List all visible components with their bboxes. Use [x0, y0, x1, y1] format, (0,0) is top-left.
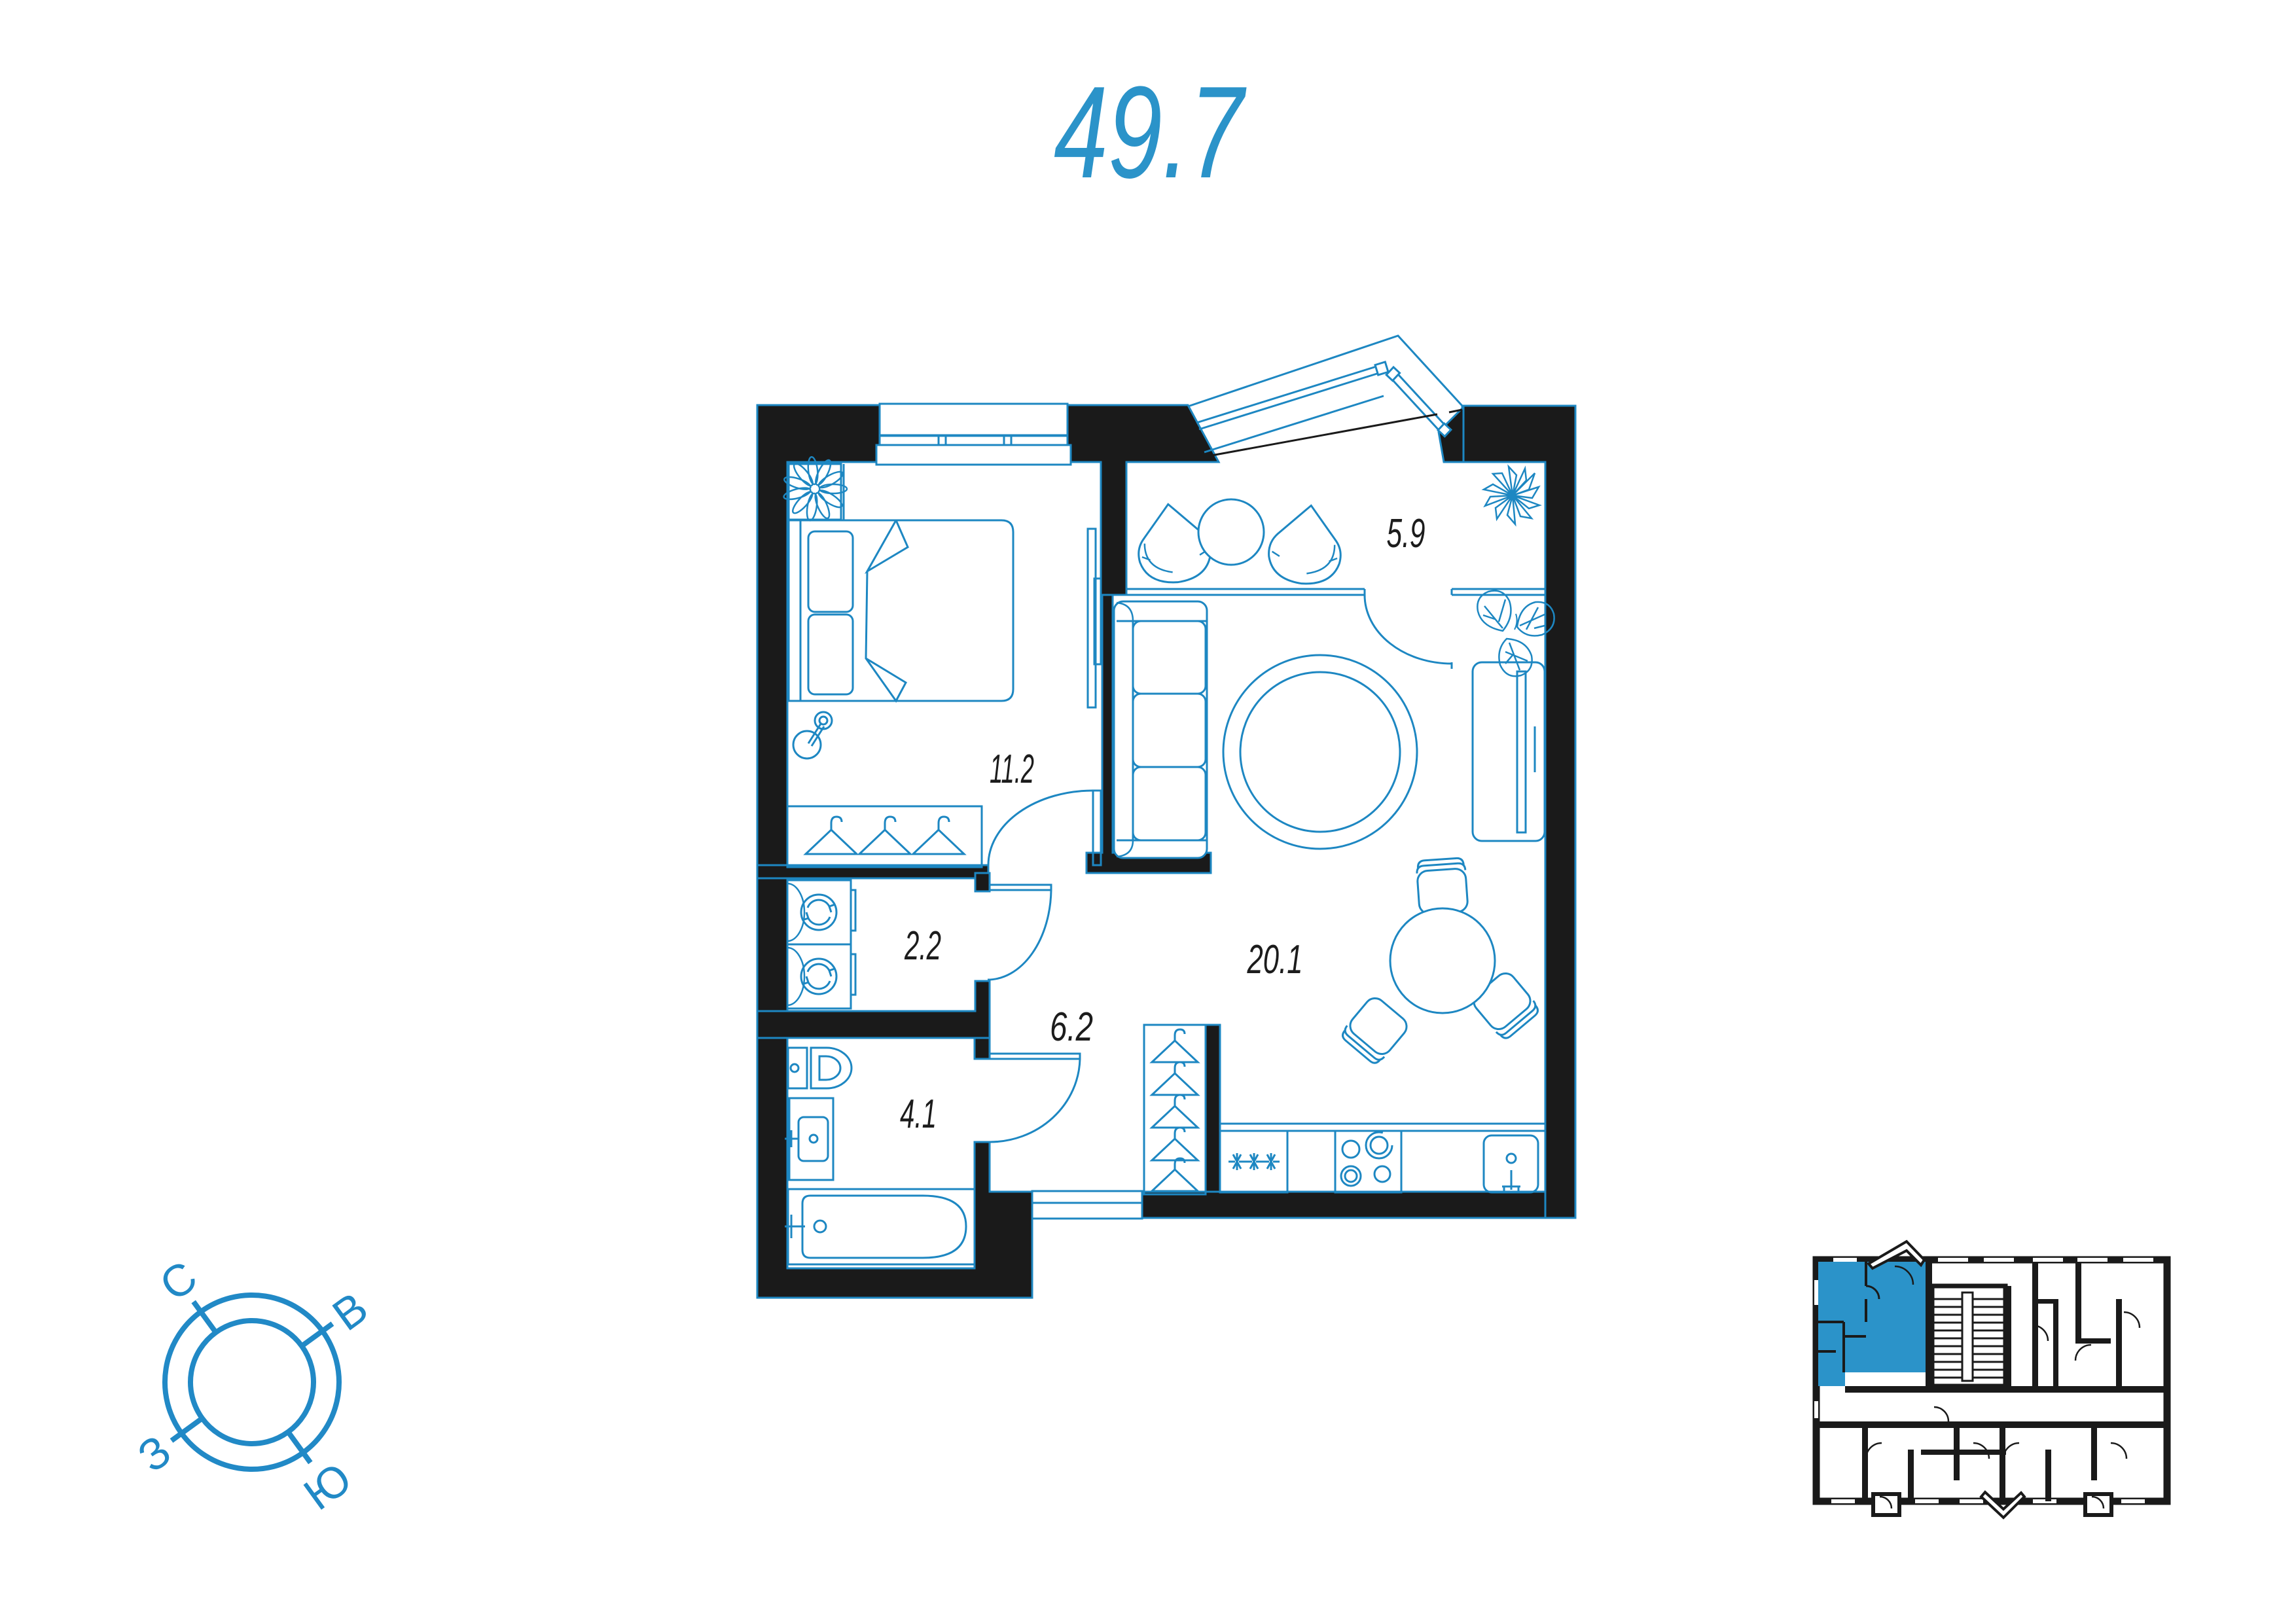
svg-text:11.2: 11.2: [990, 747, 1034, 792]
svg-text:4.1: 4.1: [900, 1092, 937, 1137]
svg-text:2.2: 2.2: [904, 923, 941, 969]
svg-text:49.7: 49.7: [1054, 60, 1247, 205]
svg-text:5.9: 5.9: [1387, 511, 1426, 556]
svg-text:20.1: 20.1: [1247, 937, 1303, 982]
svg-text:6.2: 6.2: [1050, 1005, 1093, 1050]
